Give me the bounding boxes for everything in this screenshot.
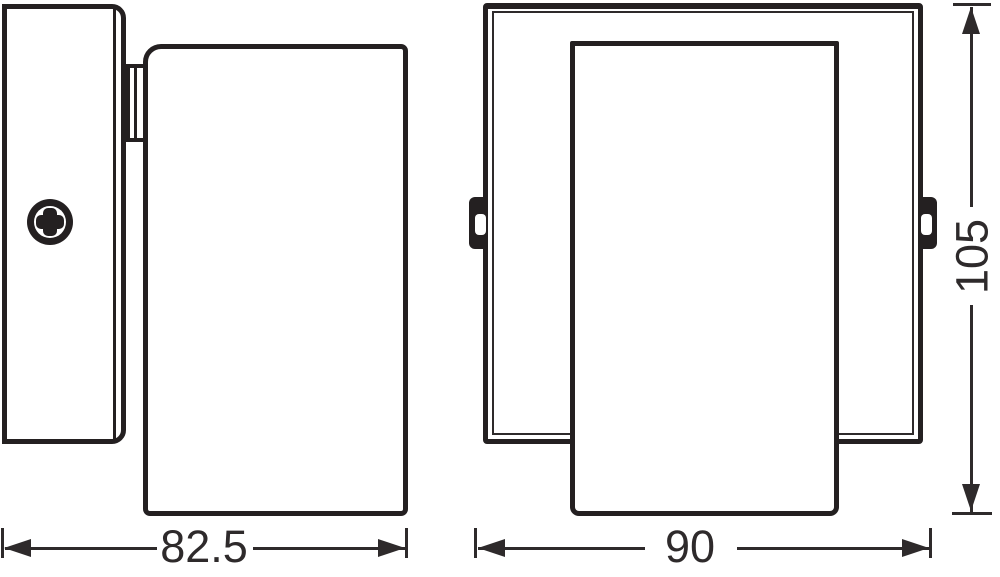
arrow-up-icon	[962, 7, 980, 34]
front-view-left-clip-slot	[475, 214, 486, 235]
dim-front-height-label: 105	[950, 202, 995, 312]
side-view-lamp-head	[143, 44, 408, 516]
arrow-left-icon	[4, 539, 31, 557]
arrow-left-icon	[478, 539, 505, 557]
screw-cross-slot-vertical	[43, 208, 57, 236]
arrow-right-icon	[378, 539, 405, 557]
mounting-screw-icon	[27, 199, 73, 245]
side-view-hinge-divider-line	[134, 66, 137, 140]
front-view-lamp-head	[570, 41, 839, 516]
dim-side-width-label: 82.5	[149, 524, 259, 569]
arrow-down-icon	[962, 484, 980, 511]
dim-side-width-right-tick	[405, 528, 408, 558]
dim-front-width-label: 90	[635, 524, 745, 569]
dim-front-width-line-right	[737, 547, 929, 550]
dim-front-width-left-tick	[474, 528, 477, 558]
side-view-plate-inner-edge	[113, 8, 116, 440]
dim-front-height-top-tick	[953, 3, 991, 6]
dim-front-height-line-bottom	[970, 305, 973, 512]
dim-front-height-line-top	[970, 7, 973, 207]
dim-front-height-bottom-tick	[952, 512, 992, 515]
arrow-right-icon	[902, 539, 929, 557]
dim-front-width-right-tick	[929, 528, 932, 558]
technical-drawing-canvas: 82.5 90 105	[0, 0, 1000, 577]
front-view-right-clip-slot	[921, 214, 932, 235]
